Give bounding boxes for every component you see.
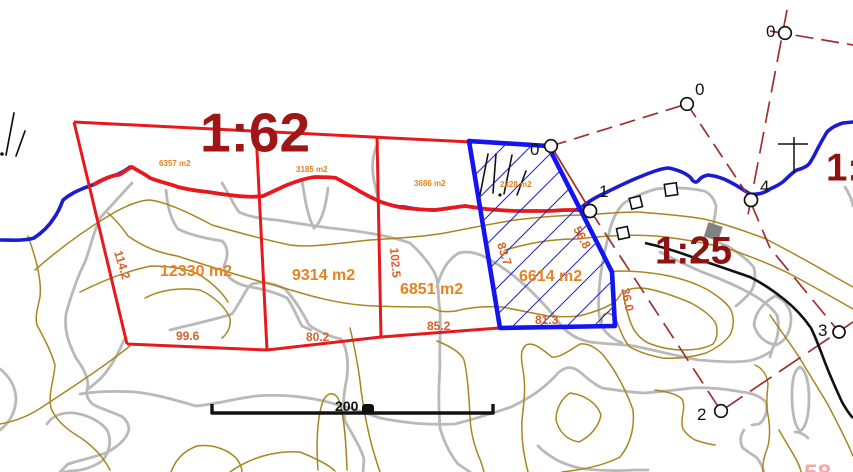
svg-text:1: 1 [599,182,608,201]
svg-text:6851 m2: 6851 m2 [400,281,463,298]
svg-text:81.3: 81.3 [535,313,559,327]
svg-text:80.2: 80.2 [306,330,330,344]
svg-text:1:62: 1:62 [200,102,310,164]
svg-text:9314 m2: 9314 m2 [292,267,355,284]
svg-text:1:25: 1:25 [655,230,732,273]
svg-text:3: 3 [818,321,827,340]
svg-text:85.2: 85.2 [427,319,451,333]
svg-text:99.6: 99.6 [176,329,200,343]
svg-text:0: 0 [695,80,704,99]
svg-text:0: 0 [766,22,775,41]
svg-text:4: 4 [760,177,769,196]
svg-text:58: 58 [804,460,831,472]
svg-text:102.5: 102.5 [387,247,404,278]
svg-text:12330 m2: 12330 m2 [160,263,232,280]
svg-text:6614 m2: 6614 m2 [519,268,582,285]
svg-text:2: 2 [697,405,706,424]
svg-text:0: 0 [530,140,539,159]
svg-text:3185 m2: 3185 m2 [296,165,328,174]
svg-text:1:: 1: [826,147,853,190]
svg-text:6357 m2: 6357 m2 [159,159,191,168]
svg-text:2828 m2: 2828 m2 [500,180,532,189]
svg-text:3686 m2: 3686 m2 [414,179,446,188]
svg-text:200: 200 [335,398,359,414]
